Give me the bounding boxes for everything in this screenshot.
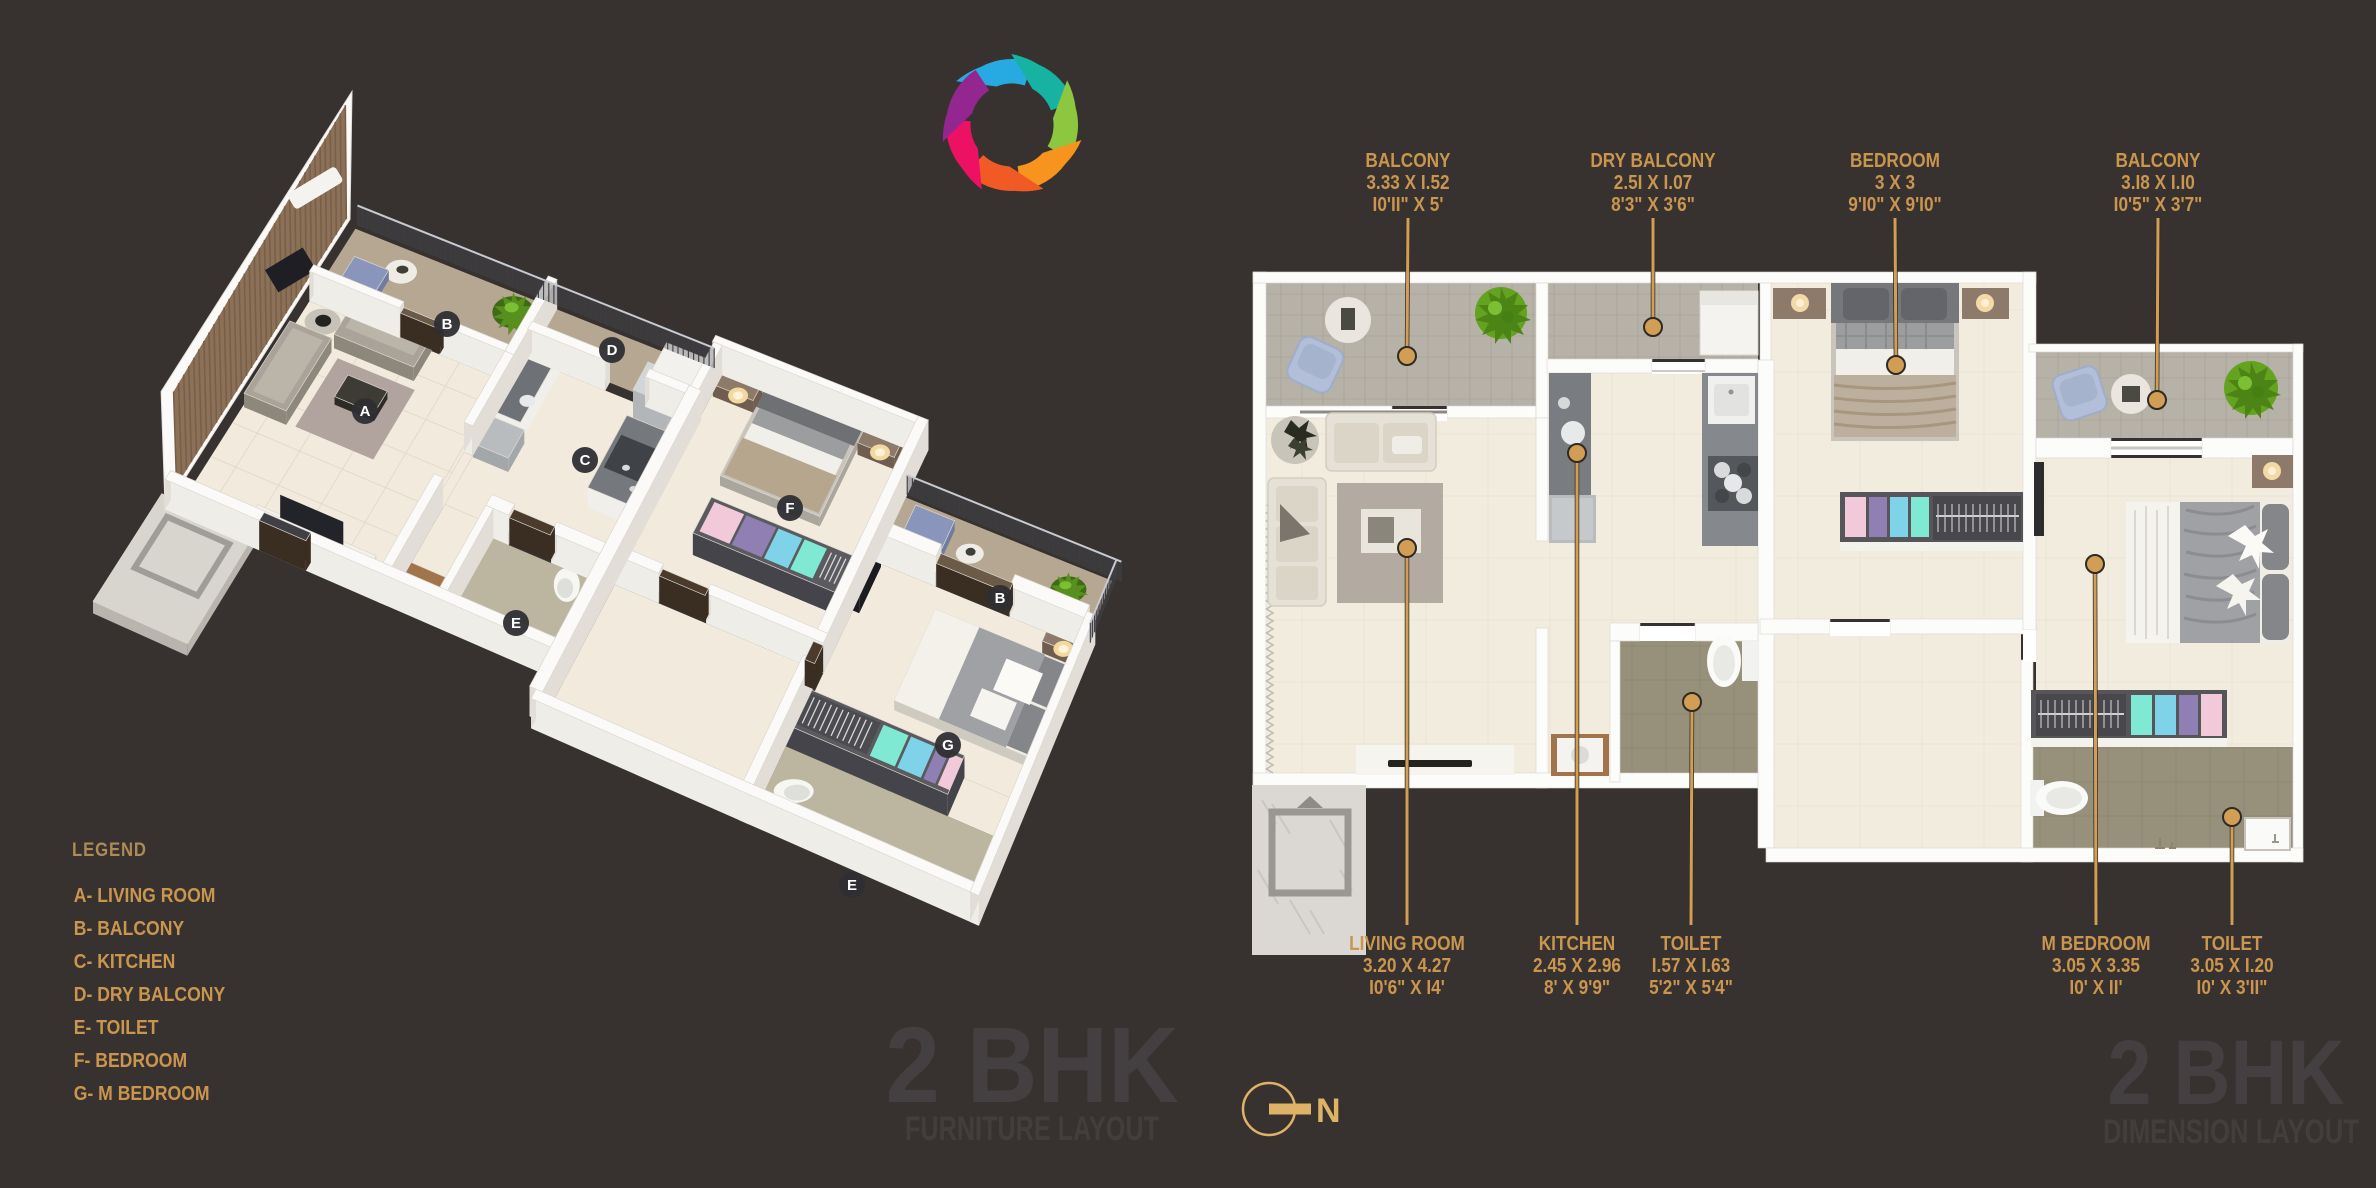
svg-text:DRY BALCONY: DRY BALCONY (1590, 150, 1716, 173)
svg-text:B- BALCONY: B- BALCONY (74, 917, 185, 939)
svg-text:BALCONY: BALCONY (1365, 150, 1450, 173)
svg-text:FURNITURE LAYOUT: FURNITURE LAYOUT (905, 1110, 1159, 1148)
svg-text:3.05 X I.20: 3.05 X I.20 (2190, 955, 2273, 978)
svg-text:E: E (511, 615, 521, 632)
svg-text:TOILET: TOILET (1661, 933, 1722, 956)
svg-text:I0' X II': I0' X II' (2069, 977, 2122, 1000)
svg-text:C: C (580, 452, 591, 469)
svg-text:I.57 X I.63: I.57 X I.63 (1652, 955, 1730, 978)
svg-text:3 X 3: 3 X 3 (1875, 172, 1915, 195)
svg-text:LIVING ROOM: LIVING ROOM (1349, 933, 1465, 956)
svg-text:LEGEND: LEGEND (72, 839, 147, 860)
svg-text:3.I8 X I.I0: 3.I8 X I.I0 (2121, 172, 2195, 195)
svg-text:A- LIVING ROOM: A- LIVING ROOM (74, 884, 216, 906)
svg-text:KITCHEN: KITCHEN (1539, 933, 1616, 956)
svg-text:I0' X 3'II": I0' X 3'II" (2197, 977, 2268, 1000)
svg-text:I0'5" X 3'7": I0'5" X 3'7" (2114, 194, 2203, 217)
svg-text:BALCONY: BALCONY (2115, 150, 2200, 173)
svg-text:D- DRY BALCONY: D- DRY BALCONY (74, 983, 226, 1005)
svg-text:2.5I X I.07: 2.5I X I.07 (1614, 172, 1692, 195)
svg-text:M BEDROOM: M BEDROOM (2041, 933, 2150, 956)
svg-text:E- TOILET: E- TOILET (74, 1016, 159, 1038)
svg-text:G- M BEDROOM: G- M BEDROOM (74, 1082, 210, 1104)
svg-text:3.05 X 3.35: 3.05 X 3.35 (2052, 955, 2140, 978)
svg-text:3.33 X I.52: 3.33 X I.52 (1366, 172, 1449, 195)
svg-text:C- KITCHEN: C- KITCHEN (74, 950, 176, 972)
svg-text:D: D (607, 342, 618, 359)
svg-text:E: E (847, 877, 857, 894)
svg-text:3.20 X 4.27: 3.20 X 4.27 (1363, 955, 1451, 978)
svg-text:2 BHK: 2 BHK (886, 1004, 1179, 1125)
svg-text:8' X 9'9": 8' X 9'9" (1544, 977, 1610, 1000)
svg-text:B: B (995, 590, 1006, 607)
svg-text:2 BHK: 2 BHK (2108, 1022, 2345, 1124)
svg-text:F: F (785, 500, 794, 517)
svg-text:TOILET: TOILET (2202, 933, 2263, 956)
svg-text:2.45 X 2.96: 2.45 X 2.96 (1533, 955, 1621, 978)
svg-text:DIMENSION LAYOUT: DIMENSION LAYOUT (2103, 1113, 2359, 1151)
svg-text:8'3" X 3'6": 8'3" X 3'6" (1611, 194, 1695, 217)
svg-text:A: A (360, 403, 371, 420)
svg-text:I0'6" X I4': I0'6" X I4' (1369, 977, 1445, 1000)
svg-text:I0'II" X 5': I0'II" X 5' (1373, 194, 1444, 217)
svg-text:G: G (942, 737, 954, 754)
svg-text:B: B (442, 316, 453, 333)
svg-text:N: N (1316, 1092, 1341, 1130)
svg-text:F- BEDROOM: F- BEDROOM (74, 1049, 187, 1071)
svg-text:9'I0" X 9'I0": 9'I0" X 9'I0" (1848, 194, 1941, 217)
svg-text:5'2" X 5'4": 5'2" X 5'4" (1649, 977, 1733, 1000)
svg-text:BEDROOM: BEDROOM (1850, 150, 1940, 173)
